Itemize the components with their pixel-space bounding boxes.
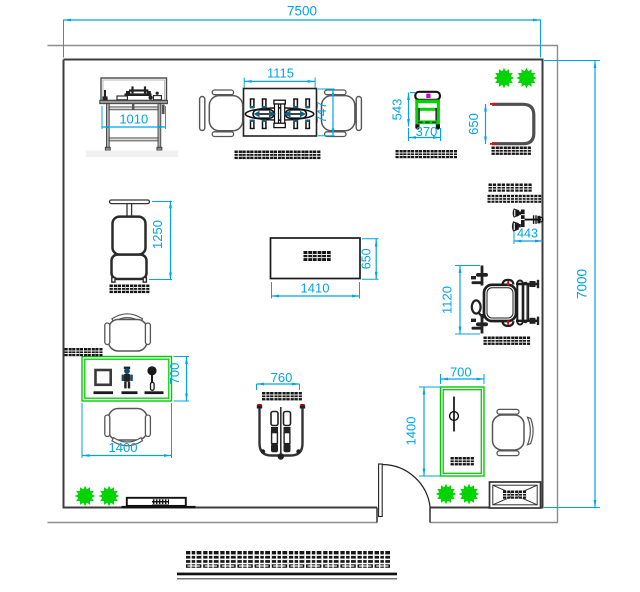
svg-text:700: 700 <box>450 365 472 380</box>
svg-text:1410: 1410 <box>301 281 330 296</box>
svg-text:370: 370 <box>416 124 438 139</box>
svg-text:1115: 1115 <box>267 66 294 81</box>
svg-text:1400: 1400 <box>109 440 138 455</box>
svg-text:1400: 1400 <box>404 417 419 446</box>
svg-text:443: 443 <box>517 227 538 241</box>
svg-text:1250: 1250 <box>150 220 165 249</box>
svg-text:747: 747 <box>314 102 329 124</box>
svg-text:7000: 7000 <box>575 269 590 299</box>
svg-text:650: 650 <box>466 113 481 135</box>
svg-text:1010: 1010 <box>119 112 148 127</box>
svg-text:7500: 7500 <box>287 4 317 19</box>
svg-text:1120: 1120 <box>440 286 455 314</box>
svg-text:650: 650 <box>359 248 373 269</box>
svg-text:760: 760 <box>271 370 293 385</box>
svg-text:700: 700 <box>167 363 182 385</box>
svg-text:543: 543 <box>390 99 405 121</box>
